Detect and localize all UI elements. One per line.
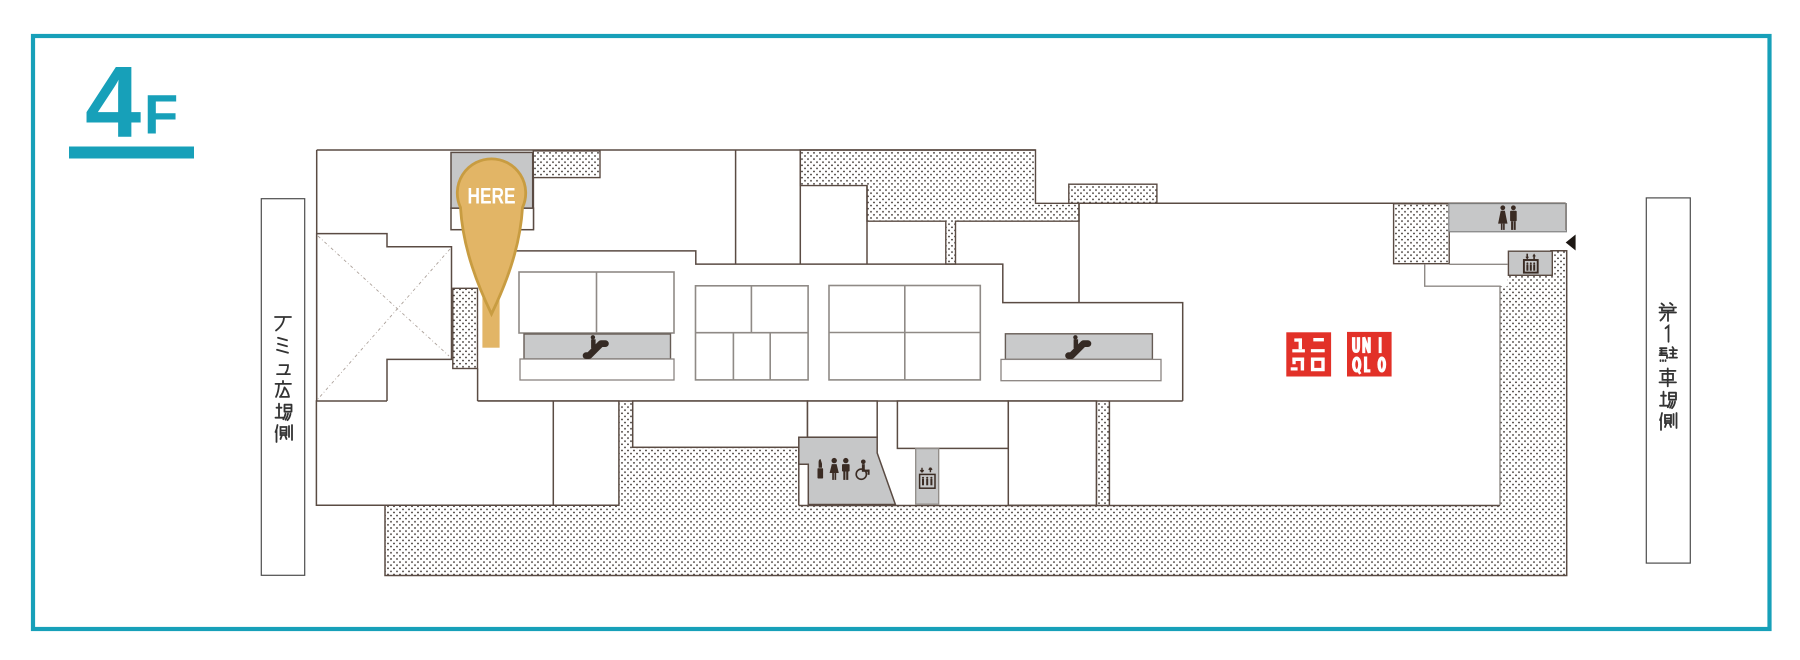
svg-text:4: 4 [85, 47, 141, 159]
svg-text:F: F [144, 83, 178, 146]
svg-text:HERE: HERE [468, 184, 516, 209]
